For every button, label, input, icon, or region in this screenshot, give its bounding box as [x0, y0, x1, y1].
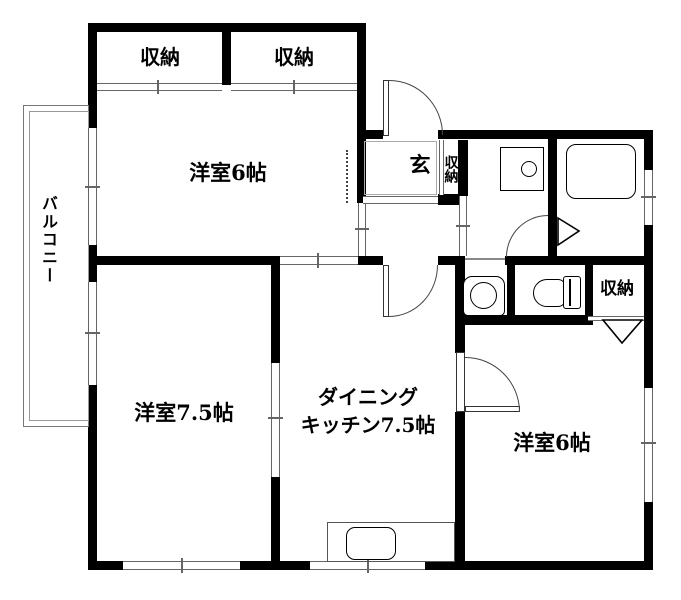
- wall-washroom-left: [458, 140, 468, 196]
- toilet-icon: [533, 279, 566, 307]
- room6r-door-leaf-closed: [456, 352, 465, 412]
- door-tick: [157, 80, 159, 94]
- sliding-door-room6-dk: [280, 256, 358, 265]
- wall-left-1: [88, 23, 97, 128]
- window-tick: [85, 186, 100, 188]
- wall-bottom-3: [425, 561, 653, 570]
- washroom-door-swing: [506, 215, 548, 257]
- window-tick: [641, 196, 656, 198]
- upper-cabinet-dashed-line: [346, 150, 348, 203]
- window-room6r-right: [644, 388, 653, 502]
- door-tick: [293, 80, 295, 94]
- wall-mid-2: [358, 256, 383, 265]
- wall-dk-right-lower: [455, 412, 465, 561]
- label-western-room-6-right: 洋室6帖: [472, 430, 632, 456]
- washing-machine-lid: [470, 282, 497, 309]
- washroom-nook-line: [465, 258, 505, 260]
- label-dining-kitchen-2: キッチン7.5帖: [280, 413, 456, 438]
- wall-top-right: [438, 130, 653, 139]
- window-room75-left: [88, 282, 97, 385]
- wall-bottom-1: [88, 561, 123, 570]
- wall-right-1: [644, 130, 653, 170]
- vanity-bowl: [521, 161, 537, 177]
- label-closet-top-1: 収納: [110, 45, 210, 70]
- wall-dk-left-upper: [271, 256, 280, 363]
- door-tick: [355, 228, 369, 230]
- closet-br-door-triangle-icon: [602, 319, 644, 345]
- wall-washroom-bath-divider: [548, 137, 557, 257]
- door-tick: [317, 253, 319, 268]
- bath-door-triangle-icon: [557, 217, 581, 247]
- bathtub-icon: [566, 144, 636, 199]
- entrance-step-line: [363, 196, 438, 204]
- wall-sanitary-bottom: [455, 315, 588, 325]
- wall-entrance-closet-stub: [438, 194, 460, 205]
- wall-closet-divider: [222, 23, 231, 85]
- label-dining-kitchen-1: ダイニング: [280, 385, 456, 410]
- entrance-door-swing: [389, 80, 443, 135]
- label-closet-top-2: 収納: [244, 45, 344, 70]
- room6r-door-swing: [465, 357, 520, 412]
- sliding-door-closet1: [97, 83, 222, 91]
- label-closet-bottom-right: 収納: [590, 279, 644, 300]
- wall-right-2: [644, 225, 653, 388]
- label-western-room-6-top: 洋室6帖: [148, 160, 308, 186]
- wall-dk-left-lower: [271, 477, 280, 570]
- kitchen-sink-icon: [346, 527, 396, 560]
- label-western-room-7-5: 洋室7.5帖: [104, 400, 264, 426]
- label-entrance-closet: 収納: [441, 144, 459, 194]
- toilet-tank: [563, 276, 581, 309]
- dk-door-swing: [389, 265, 438, 317]
- label-entrance: 玄: [395, 152, 445, 178]
- toilet-tank-line: [569, 279, 571, 306]
- sliding-door-room75-dk: [271, 363, 280, 477]
- label-balcony: バルコニー: [38, 152, 58, 327]
- floor-plan: 収納 収納 洋室6帖 バルコニー 玄 収納 洋室7.5帖 ダイニング キッチン7…: [0, 0, 681, 600]
- wall-mid-1: [88, 256, 271, 265]
- wall-left-3: [88, 385, 97, 570]
- wall-mid-4: [505, 256, 653, 265]
- sliding-door-hall-room6: [358, 203, 366, 256]
- window-tick: [181, 558, 183, 573]
- window-tick: [85, 332, 100, 334]
- wall-right-3: [644, 502, 653, 570]
- door-tick: [456, 225, 470, 227]
- wall-top-entrance-stub: [363, 130, 383, 139]
- window-tick: [641, 442, 656, 444]
- window-bath-right: [644, 170, 653, 225]
